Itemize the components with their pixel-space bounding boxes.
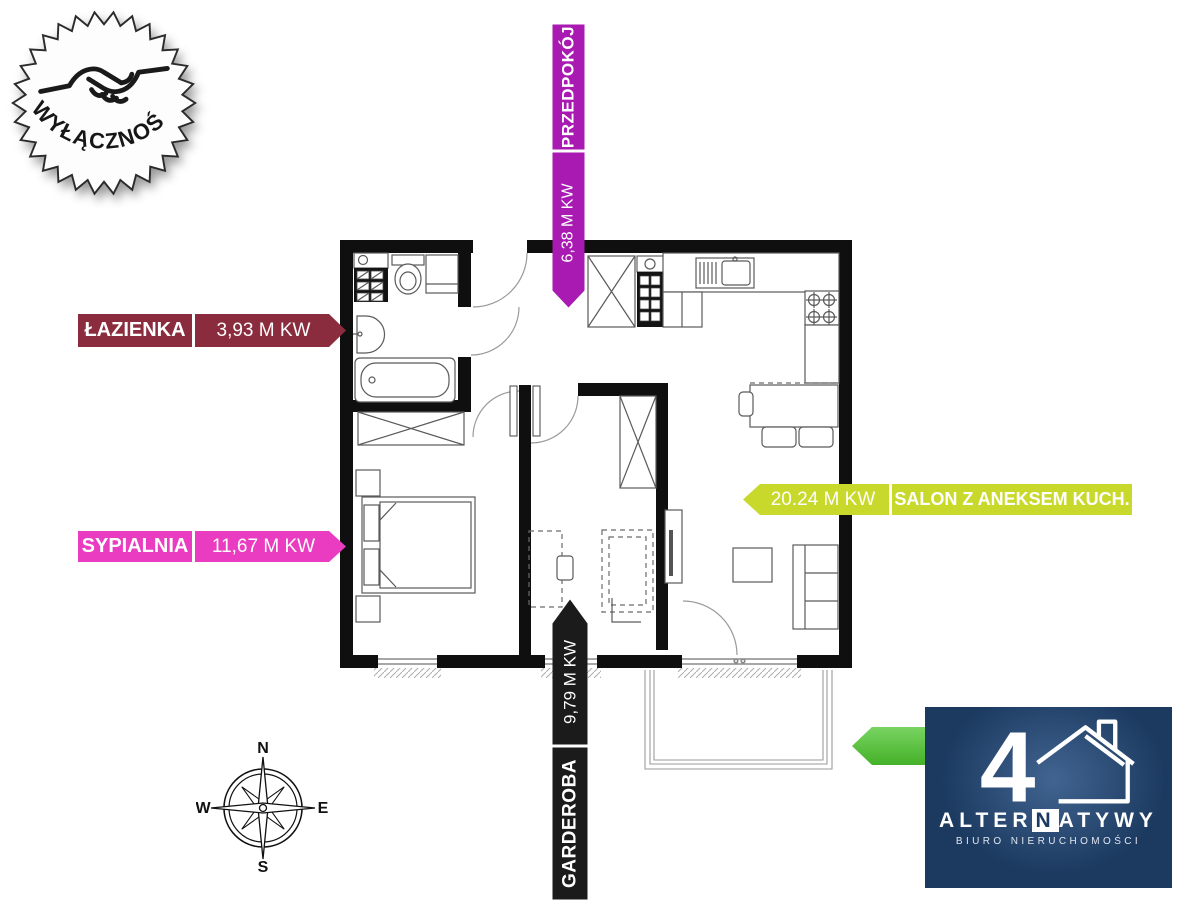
label-sypialnia-area: 11,67 M KW	[195, 531, 346, 562]
label-lazienka: ŁAZIENKA 3,93 M KW	[78, 314, 346, 347]
label-divider	[553, 745, 588, 748]
bathroom-cabinet	[426, 255, 458, 293]
label-sypialnia-name: SYPIALNIA	[78, 531, 192, 562]
label-salon-name: SALON Z ANEKSEM KUCH.	[892, 484, 1132, 515]
nightstand	[356, 596, 380, 622]
sink	[353, 316, 385, 353]
logo-n-box: N	[1032, 809, 1058, 832]
label-garderoba-area: 9,79 M KW	[553, 600, 588, 745]
tv-console	[665, 510, 682, 583]
logo-mark: 4	[949, 713, 1149, 809]
balcony	[645, 670, 832, 769]
bed	[362, 497, 475, 593]
label-divider	[553, 150, 585, 153]
bathtub	[355, 358, 455, 402]
compass-rose: N S W E	[196, 742, 330, 874]
bathroom-fixtures	[353, 253, 458, 402]
label-garderoba: GARDEROBA 9,79 M KW	[553, 600, 588, 900]
label-lazienka-area: 3,93 M KW	[195, 314, 346, 347]
toilet	[392, 255, 424, 294]
compass-east-label: E	[318, 800, 329, 817]
label-garderoba-name: GARDEROBA	[553, 748, 588, 900]
compass-north-label: N	[257, 742, 269, 757]
compass-south-label: S	[258, 859, 269, 874]
nightstand	[356, 470, 380, 496]
garderoba-furniture	[529, 396, 656, 622]
floorplan-flyer: { "stamp": { "label": "WYŁĄCZNOŚĆ" }, "p…	[0, 0, 1200, 900]
dining-table	[739, 385, 838, 447]
bedroom-furniture	[356, 412, 475, 622]
hall-closet	[588, 256, 663, 327]
stove	[805, 291, 839, 325]
label-lazienka-name: ŁAZIENKA	[78, 314, 192, 347]
compass-west-label: W	[196, 800, 211, 817]
kitchen-sink	[696, 257, 754, 288]
label-przedpokoj: 6,38 M KW PRZEDPOKÓJ	[553, 25, 585, 308]
label-salon: 20.24 M KW SALON Z ANEKSEM KUCH.	[743, 484, 1132, 515]
living-room	[665, 510, 838, 629]
agency-logo: 4 ALTERNATYWY BIURO NIERUCHOMOŚCI	[925, 707, 1172, 888]
coffee-table	[733, 548, 772, 582]
kitchen	[663, 253, 839, 447]
logo-subtitle: BIURO NIERUCHOMOŚCI	[925, 836, 1172, 847]
label-sypialnia: SYPIALNIA 11,67 M KW	[78, 531, 346, 562]
logo-name: ALTERNATYWY	[925, 809, 1172, 832]
label-przedpokoj-area: 6,38 M KW	[553, 153, 585, 308]
exterior-hatch	[374, 668, 801, 678]
logo-numeral: 4	[979, 713, 1035, 809]
sofa	[793, 545, 838, 629]
label-przedpokoj-name: PRZEDPOKÓJ	[553, 25, 585, 150]
exclusivity-stamp: WYŁĄCZNOŚĆ	[8, 5, 200, 201]
house-icon	[1037, 722, 1133, 802]
label-salon-area: 20.24 M KW	[743, 484, 889, 515]
